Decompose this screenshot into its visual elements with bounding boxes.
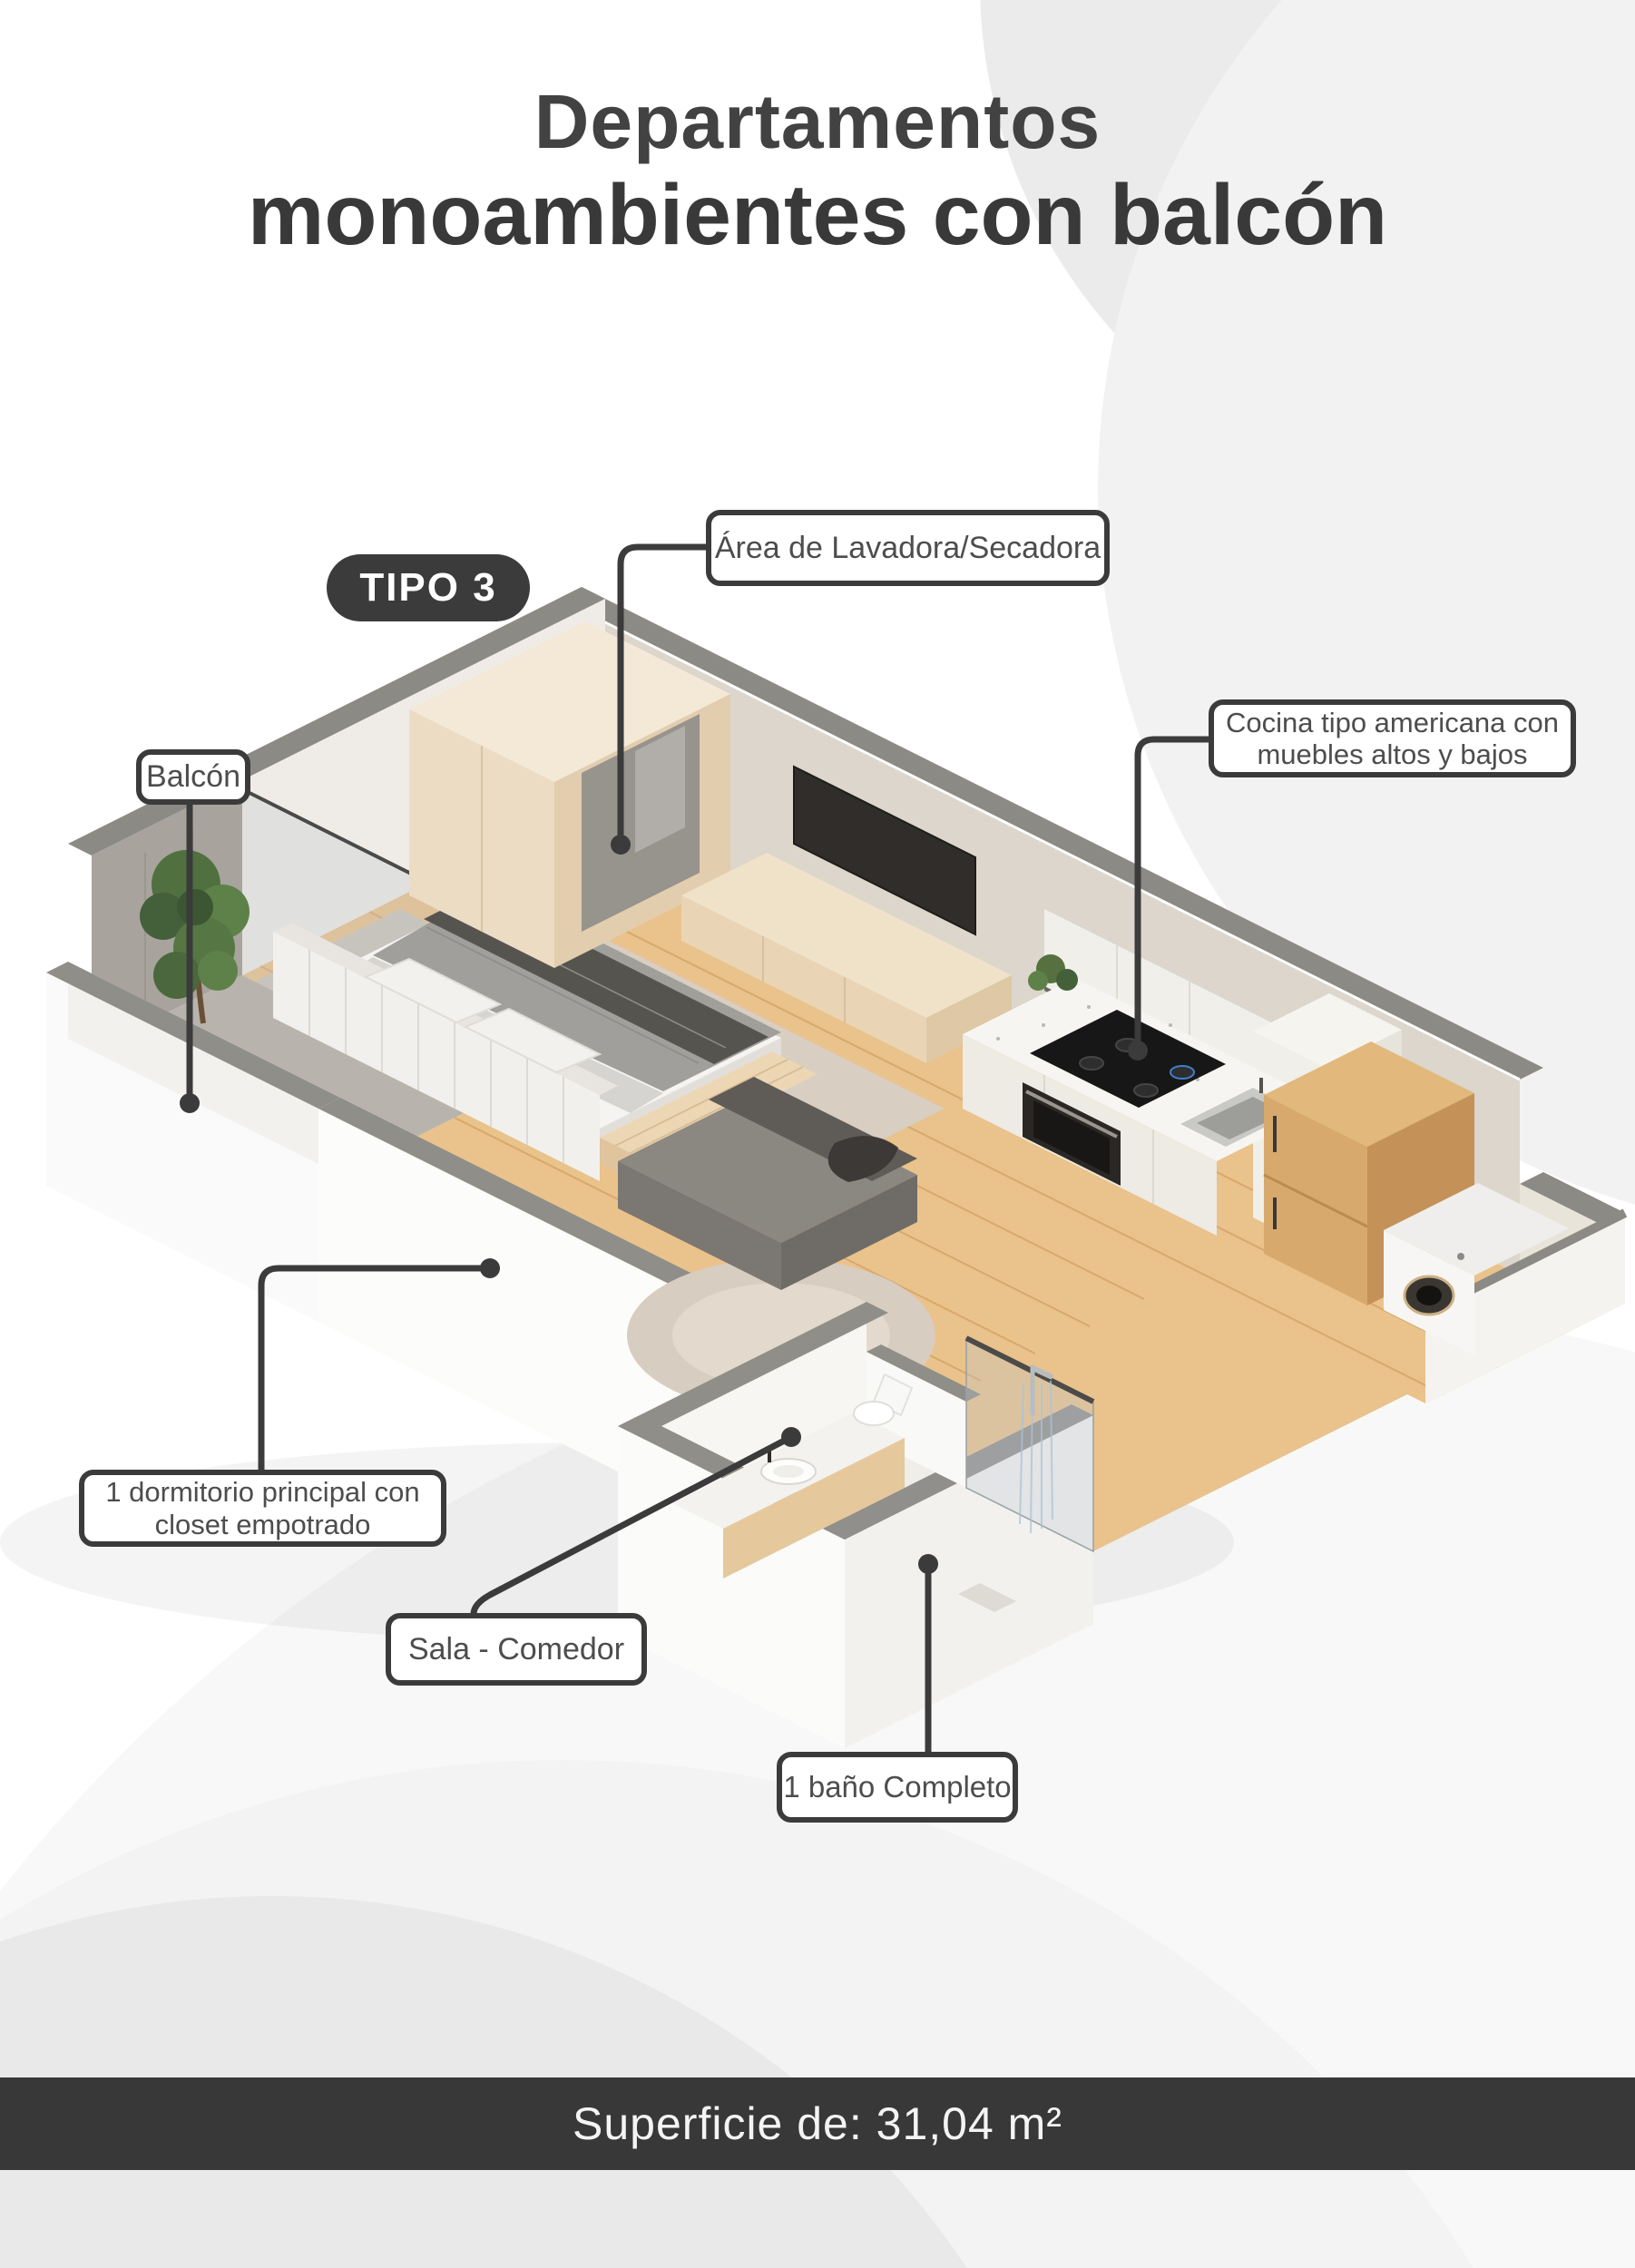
callout-dot-sala <box>781 1427 801 1447</box>
toilet-bowl <box>854 1402 894 1425</box>
label-bano: 1 baño Completo <box>777 1752 1018 1823</box>
page-title: Departamentos monoambientes con balcón <box>0 83 1635 259</box>
label-sala: Sala - Comedor <box>386 1613 647 1686</box>
washer-knob <box>1457 1253 1464 1260</box>
label-balcon: Balcón <box>136 749 250 805</box>
callout-dot-dormitorio <box>480 1258 500 1278</box>
label-dormitorio: 1 dormitorio principal con closet empotr… <box>79 1470 446 1547</box>
callout-dot-bano <box>918 1554 938 1574</box>
callout-dot-cocina <box>1128 1041 1148 1061</box>
washer-drum <box>1416 1286 1442 1305</box>
footer-bar: Superficie de: 31,04 m² <box>0 2077 1635 2170</box>
surface-area-text: Superficie de: 31,04 m² <box>573 2097 1062 2150</box>
callout-dot-lavadora <box>611 835 631 855</box>
floorplan-render <box>0 0 1635 2268</box>
title-line-2: monoambientes con balcón <box>0 172 1635 259</box>
label-lavadora: Área de Lavadora/Secadora <box>706 510 1110 586</box>
basin-inner <box>773 1465 804 1478</box>
type-badge: TIPO 3 <box>327 554 530 621</box>
label-cocina: Cocina tipo americana con muebles altos … <box>1209 699 1576 777</box>
title-line-1: Departamentos <box>0 83 1635 160</box>
callout-dot-balcon <box>180 1093 200 1113</box>
